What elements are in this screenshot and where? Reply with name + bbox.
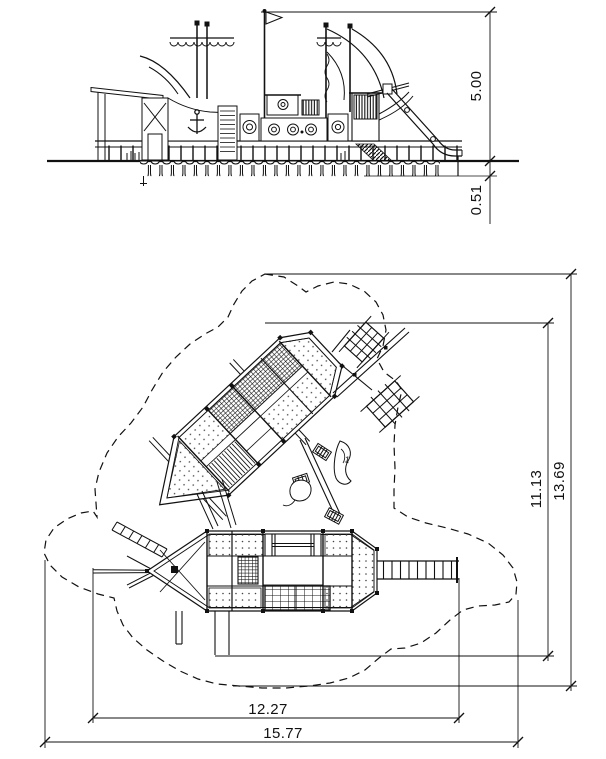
plan-structure-height-label: 11.13: [528, 470, 545, 508]
bowsprit: [93, 570, 147, 571]
elevation-view: 5.00 0.51: [47, 7, 519, 224]
h-frame-bridge: [265, 534, 321, 556]
fore-mast: [140, 21, 234, 99]
gangway: [377, 557, 459, 583]
plan-structure-width-label: 12.27: [248, 701, 288, 718]
crows-nest: [317, 42, 341, 46]
spring-bench: [325, 508, 344, 524]
upper-slide-long: [333, 328, 409, 397]
mid-section: [240, 95, 348, 141]
plan-safety-height-label: 13.69: [551, 461, 568, 501]
elevation-height-dimension-label: 5.00: [468, 71, 485, 102]
net-deck-panel: [265, 586, 330, 610]
spring-bench: [313, 443, 332, 460]
footing-row: [140, 162, 440, 177]
sail-arc: [327, 29, 384, 98]
technical-drawing-page: 5.00 0.51: [0, 0, 606, 759]
ground-line: [47, 146, 519, 187]
item-marker-label: 1: [344, 454, 351, 465]
flag-pennant: [266, 12, 282, 24]
sail-arc: [140, 56, 190, 98]
plan-view: 1 11.13 13.69 12.27 15.77: [40, 269, 577, 748]
lower-slide: [176, 611, 229, 655]
crows-nest: [170, 42, 234, 46]
ladder-tower: [218, 106, 237, 160]
plan-ship-lower: [93, 529, 459, 655]
plan-accessories: 1: [283, 441, 351, 524]
plan-safety-width-label: 15.77: [263, 725, 303, 742]
playground-dimension-drawing: 5.00 0.51: [0, 0, 606, 759]
climbing-wall-panel: [238, 557, 258, 584]
bow-rope-ladder: [112, 522, 167, 557]
stern-net-b: [358, 373, 422, 436]
play-figure: [290, 480, 311, 501]
elevation-depth-dimension-label: 0.51: [468, 185, 485, 216]
